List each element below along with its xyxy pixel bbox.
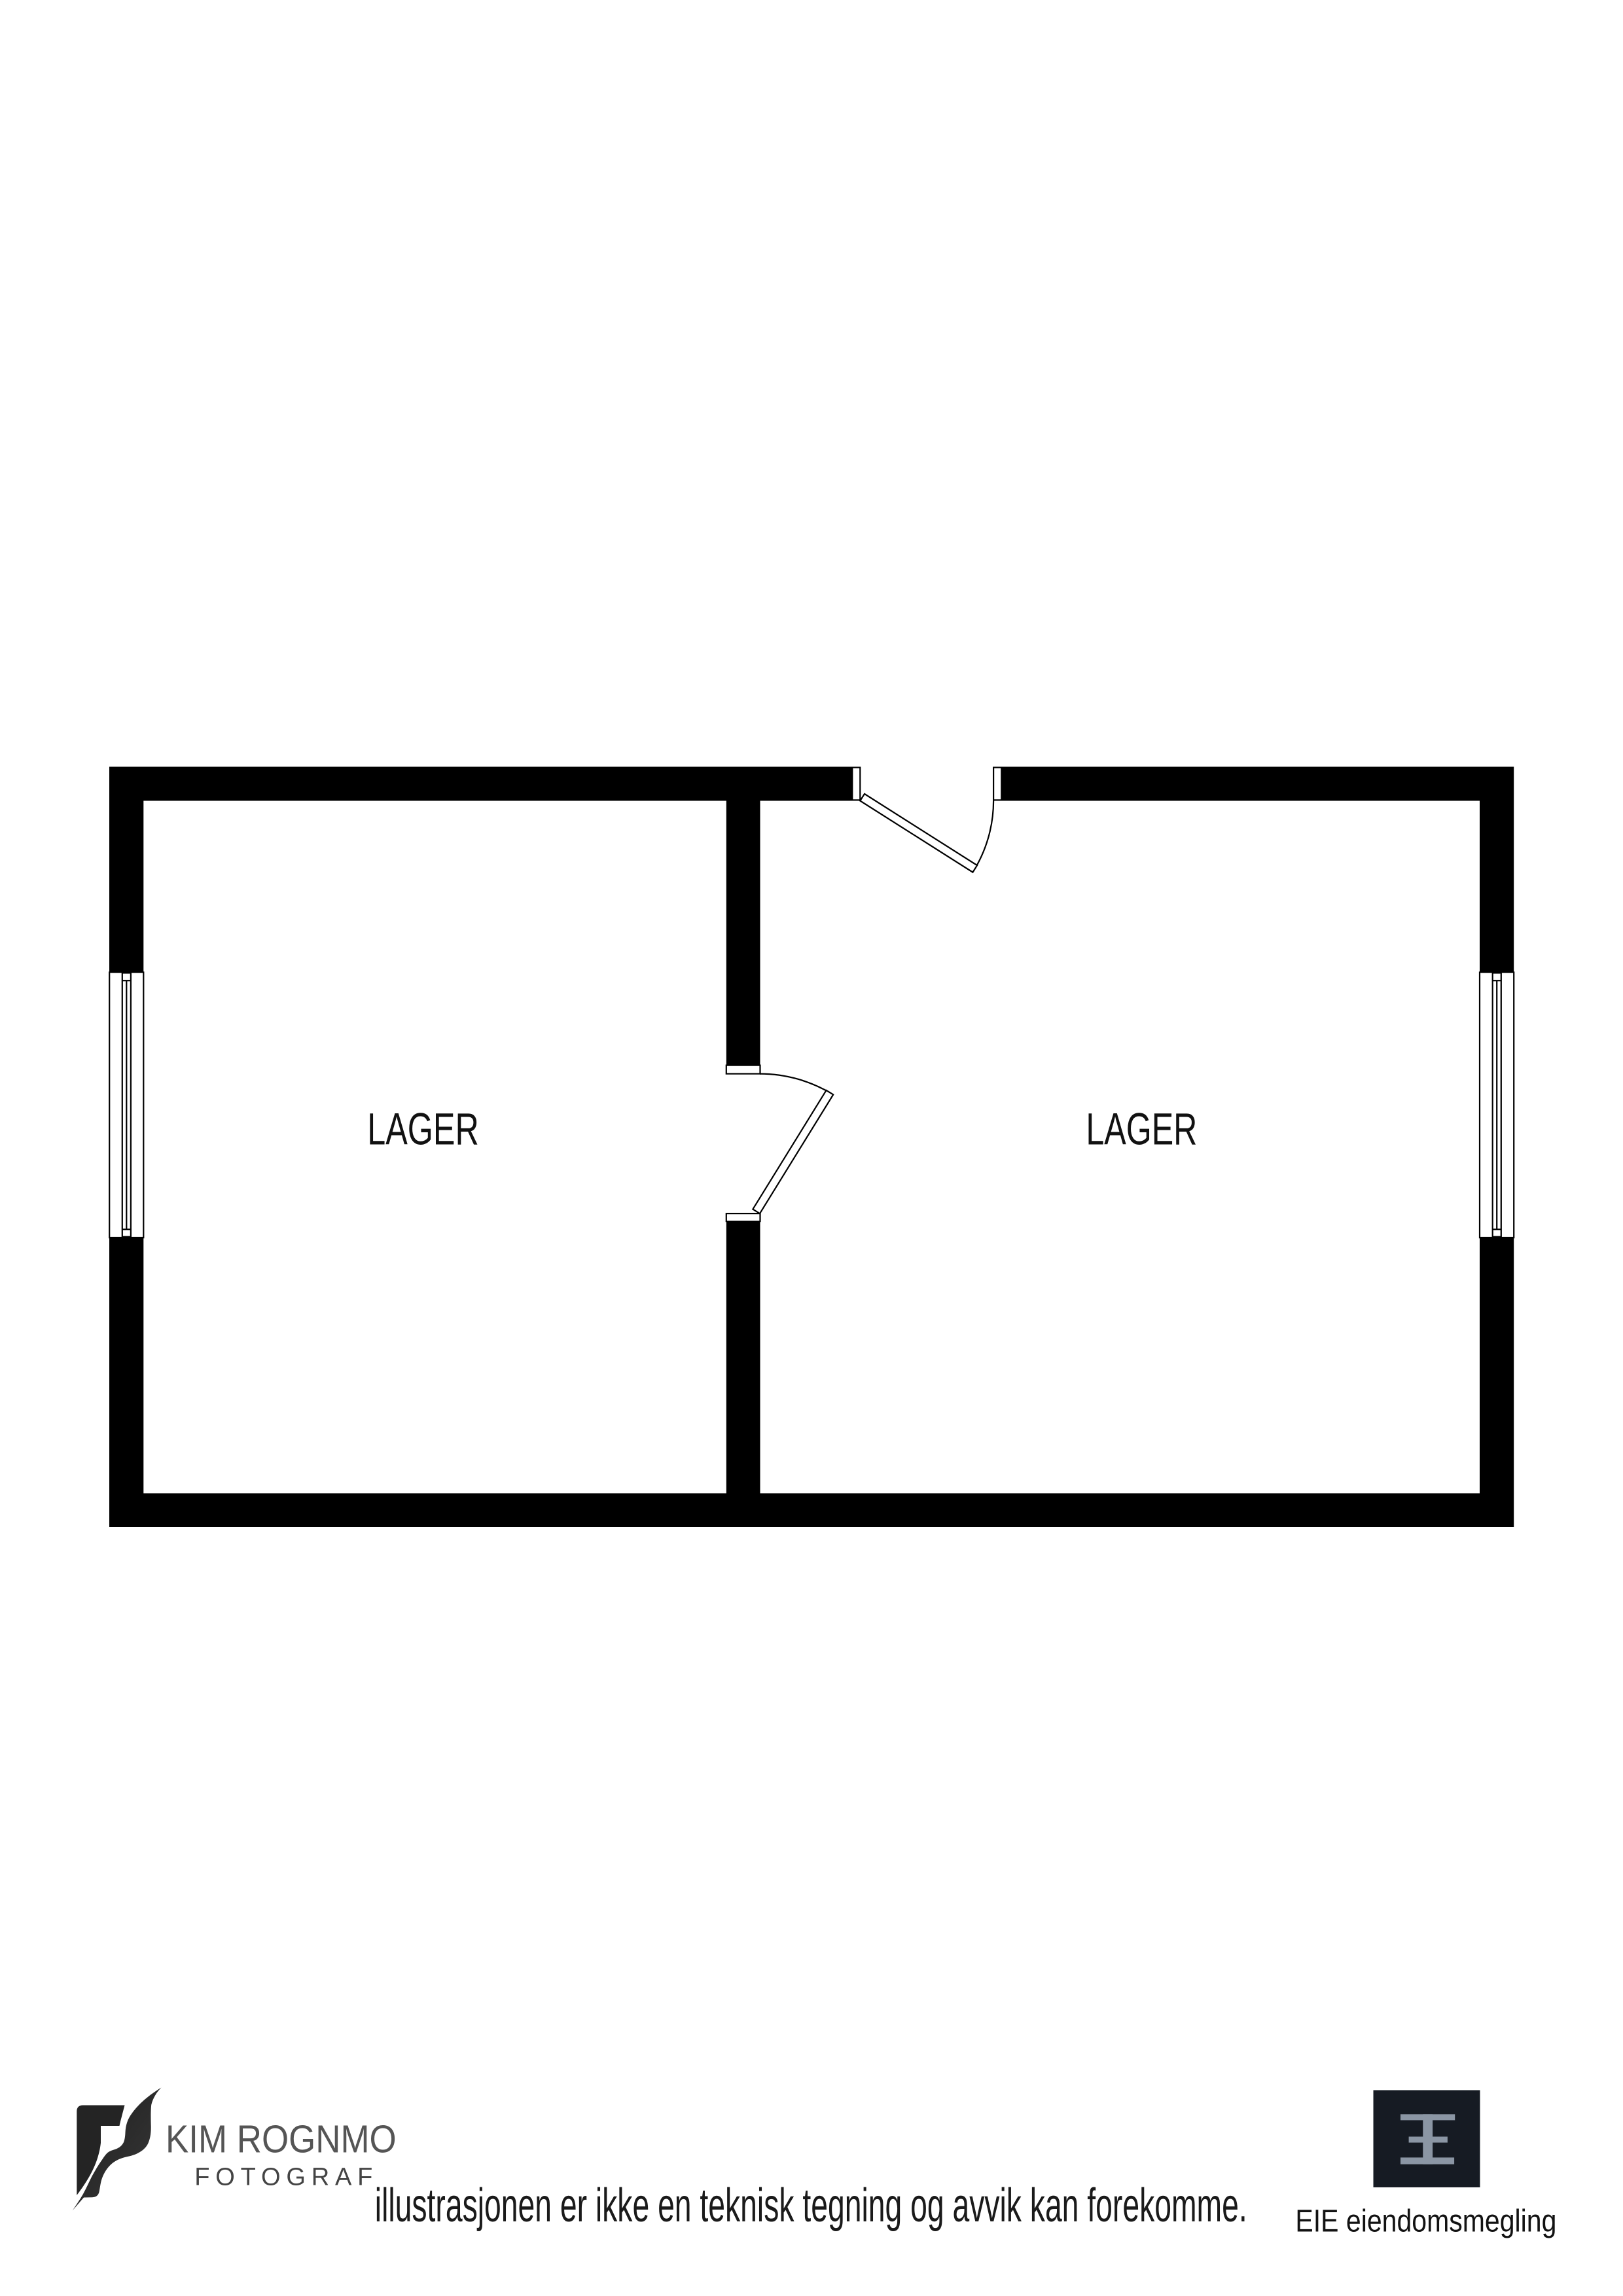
svg-text:LAGER: LAGER (367, 1105, 479, 1155)
svg-text:KIM ROGNMO: KIM ROGNMO (166, 2118, 397, 2161)
svg-text:illustrasjonen er ikke en tekn: illustrasjonen er ikke en teknisk tegnin… (375, 2179, 1247, 2232)
svg-text:EIE eiendomsmegling: EIE eiendomsmegling (1295, 2204, 1556, 2239)
svg-text:LAGER: LAGER (1086, 1105, 1197, 1155)
